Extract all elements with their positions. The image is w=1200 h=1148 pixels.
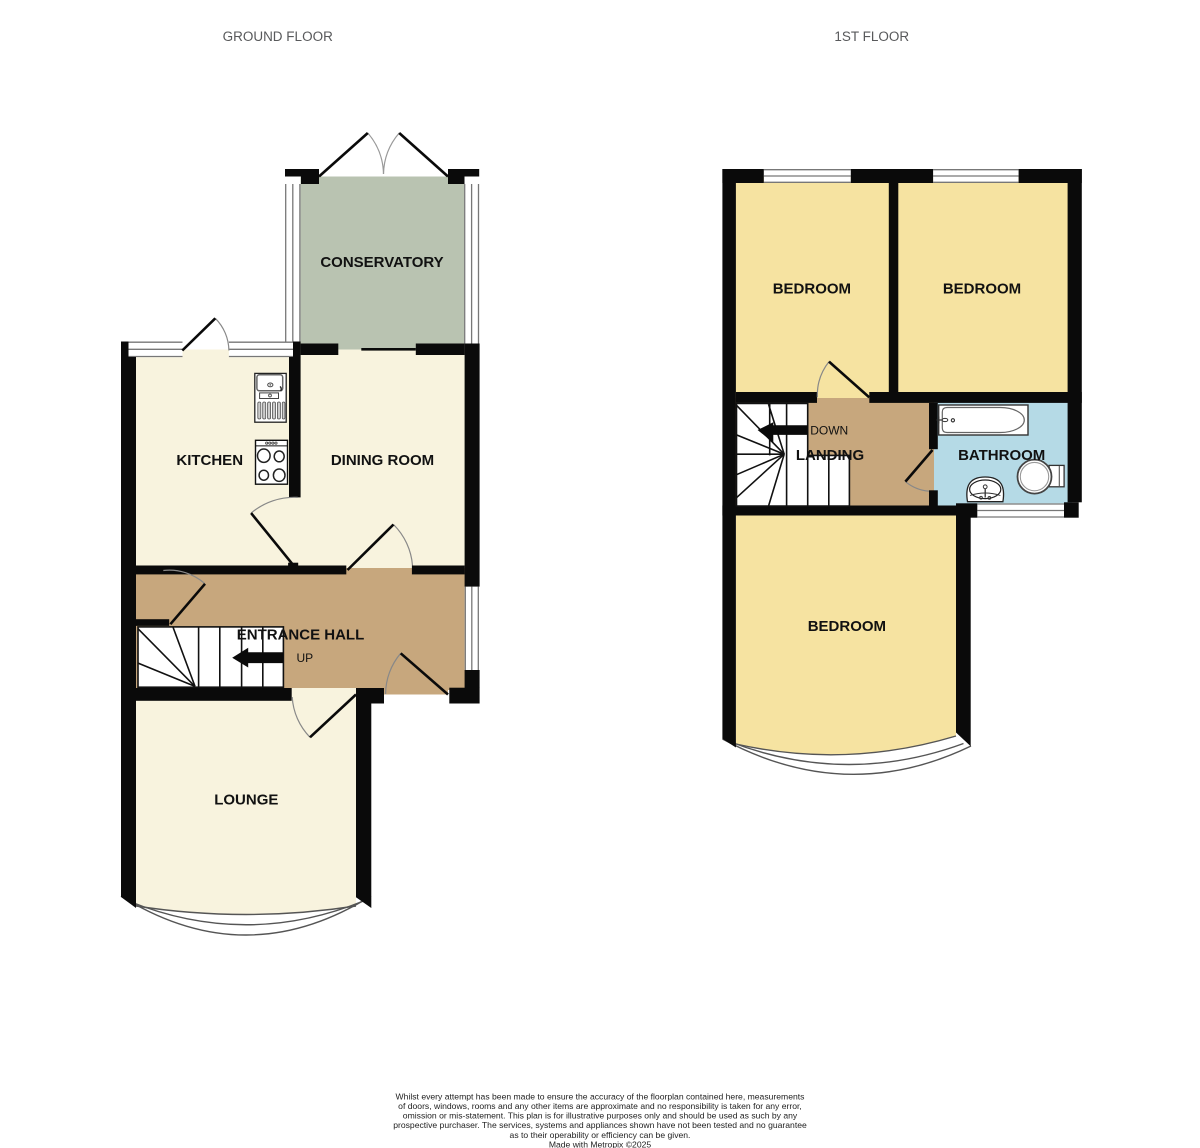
svg-text:BEDROOM: BEDROOM — [773, 281, 851, 298]
svg-text:Whilst every attempt has been: Whilst every attempt has been made to en… — [396, 1091, 805, 1101]
svg-text:1ST FLOOR: 1ST FLOOR — [834, 29, 909, 44]
svg-text:prospective purchaser. The ser: prospective purchaser. The services, sys… — [393, 1120, 807, 1130]
svg-text:DINING ROOM: DINING ROOM — [331, 452, 434, 469]
svg-text:BEDROOM: BEDROOM — [943, 281, 1021, 298]
svg-text:LOUNGE: LOUNGE — [214, 791, 278, 808]
svg-text:LANDING: LANDING — [796, 447, 864, 464]
svg-text:CONSERVATORY: CONSERVATORY — [320, 254, 443, 271]
svg-text:of doors, windows, rooms and a: of doors, windows, rooms and any other i… — [398, 1101, 802, 1111]
svg-text:BEDROOM: BEDROOM — [808, 618, 886, 635]
svg-text:UP: UP — [296, 651, 313, 665]
svg-text:KITCHEN: KITCHEN — [176, 452, 243, 469]
svg-text:as to their operability or eff: as to their operability or efficiency ca… — [510, 1130, 691, 1140]
svg-text:DOWN: DOWN — [810, 424, 848, 438]
svg-text:GROUND FLOOR: GROUND FLOOR — [223, 29, 334, 44]
svg-text:BATHROOM: BATHROOM — [958, 447, 1045, 464]
svg-text:Made with Metropix ©2025: Made with Metropix ©2025 — [549, 1139, 652, 1148]
svg-text:ENTRANCE HALL: ENTRANCE HALL — [237, 626, 365, 643]
svg-text:omission or mis-statement. Thi: omission or mis-statement. This plan is … — [403, 1111, 798, 1121]
